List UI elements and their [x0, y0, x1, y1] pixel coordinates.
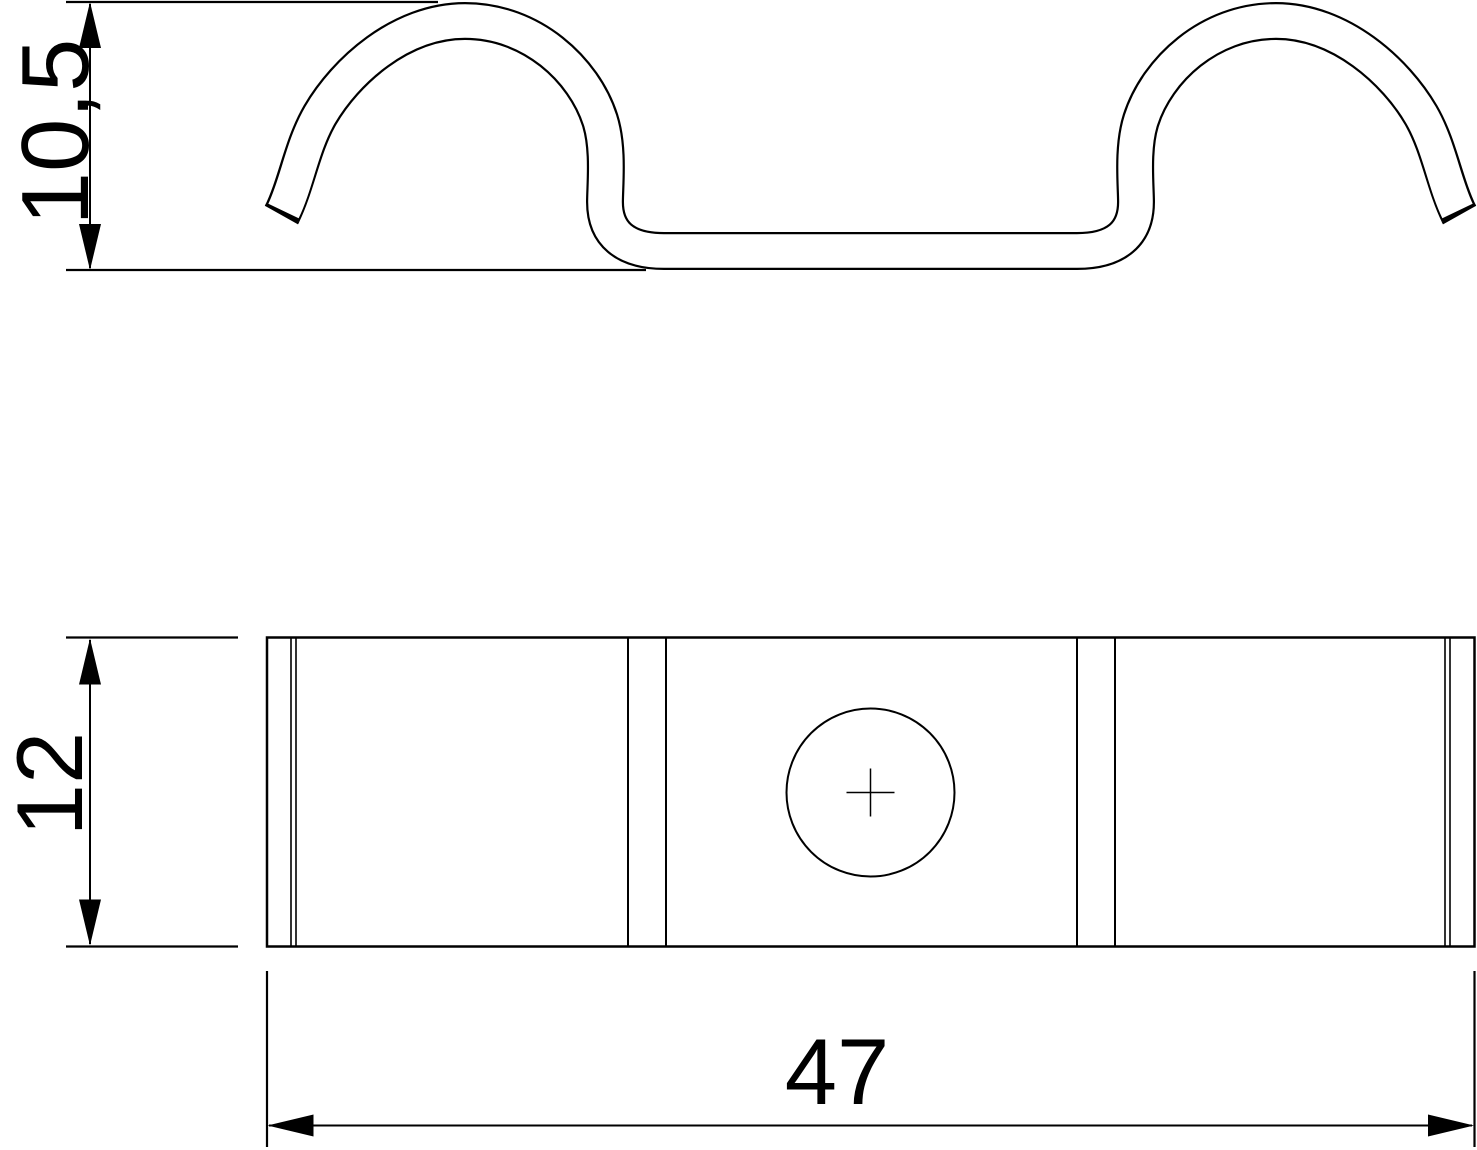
arrowhead-left-icon — [268, 1115, 314, 1137]
arrowhead-down-icon — [79, 224, 101, 270]
arrowhead-right-icon — [1428, 1115, 1474, 1137]
profile-view: 10,5 — [2, 2, 1476, 270]
arrowhead-down-icon — [79, 900, 101, 946]
plan-length-dimension-label: 47 — [785, 1019, 890, 1124]
profile-height-dimension-label: 10,5 — [2, 39, 109, 226]
plan-depth-dimension-label: 12 — [0, 732, 102, 837]
drawing-canvas: 10,5 12 — [0, 0, 1477, 1150]
profile-strip-outline — [282, 21, 1459, 251]
plan-view: 12 47 — [0, 638, 1475, 1148]
arrowhead-up-icon — [79, 639, 101, 685]
technical-drawing-page: 10,5 12 — [0, 0, 1477, 1150]
profile-strip-fill — [284, 21, 1458, 251]
